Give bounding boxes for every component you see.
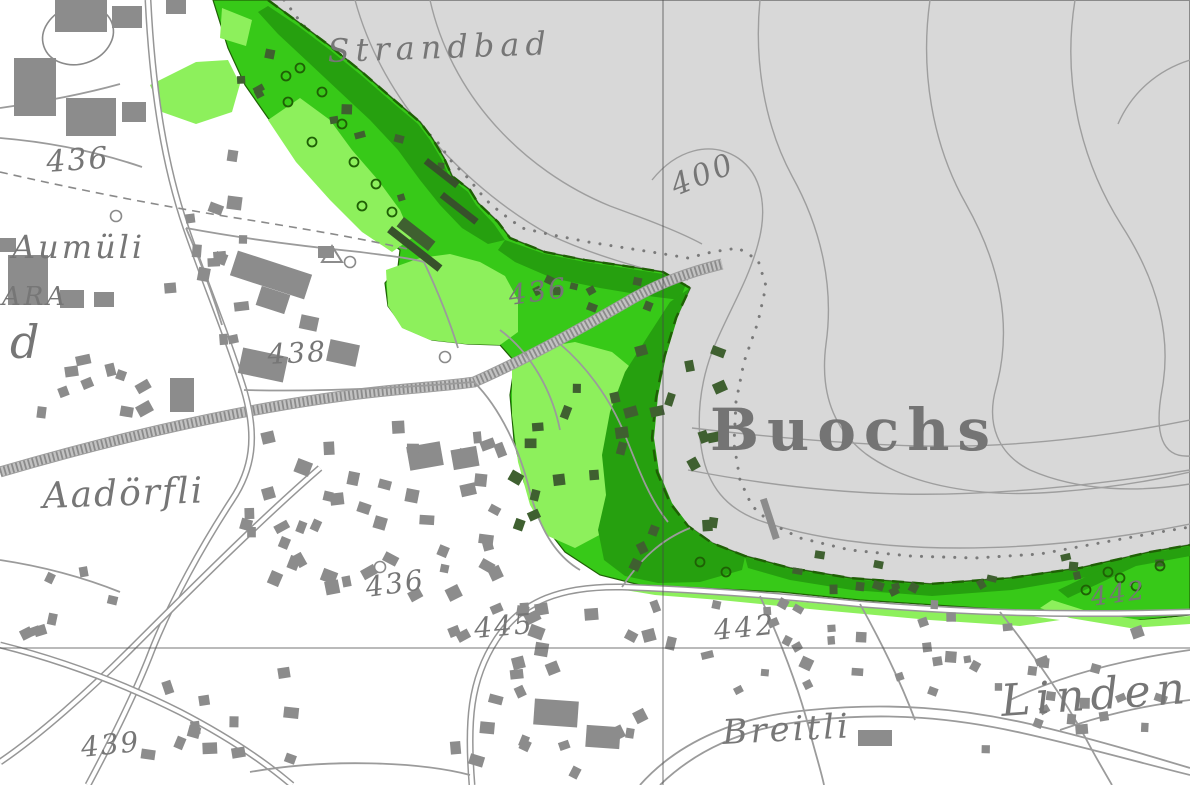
- building: [761, 669, 769, 677]
- building: [474, 473, 487, 487]
- building: [827, 636, 835, 645]
- building: [392, 420, 405, 433]
- building: [946, 612, 956, 621]
- map-label-aumuli: Aumüli: [9, 228, 145, 266]
- building: [440, 564, 450, 574]
- map-label-breitli: Breitli: [720, 706, 852, 753]
- building: [589, 470, 599, 481]
- building: [198, 695, 210, 706]
- building: [141, 749, 156, 761]
- building: [341, 104, 352, 114]
- building: [227, 150, 239, 163]
- building: [234, 301, 250, 312]
- building: [615, 426, 629, 439]
- building: [858, 730, 892, 746]
- building: [226, 196, 242, 211]
- building: [79, 566, 89, 577]
- building: [229, 716, 238, 727]
- building: [930, 600, 938, 609]
- map-label-aadorfli: Aadörfli: [39, 470, 205, 517]
- building: [170, 378, 194, 412]
- building: [94, 292, 114, 307]
- map-viewport[interactable]: Strandbad436AumüliARAd438400436BuochsAad…: [0, 0, 1190, 785]
- map-label-buochs: Buochs: [710, 396, 998, 464]
- building: [827, 624, 836, 632]
- map-label-elev-438: 438: [266, 335, 328, 371]
- building: [239, 235, 247, 244]
- circle-symbol: [440, 352, 451, 363]
- building: [119, 405, 133, 417]
- building: [856, 632, 867, 643]
- building: [1039, 657, 1050, 668]
- building: [404, 488, 419, 504]
- building: [190, 721, 201, 735]
- map-label-ara: ARA: [0, 282, 68, 312]
- map-label-elev-439: 439: [78, 725, 142, 764]
- building: [283, 706, 299, 718]
- building: [1069, 562, 1079, 572]
- building: [851, 668, 863, 676]
- building: [963, 655, 971, 663]
- building: [122, 102, 146, 122]
- building: [1141, 723, 1149, 733]
- map-label-elev-436-topleft: 436: [44, 141, 111, 180]
- building: [192, 244, 202, 257]
- building: [525, 438, 537, 448]
- building: [36, 406, 46, 418]
- building: [323, 441, 334, 455]
- building: [932, 656, 943, 666]
- building: [264, 48, 275, 59]
- building: [166, 0, 186, 14]
- building: [66, 98, 116, 136]
- building: [553, 474, 566, 487]
- building: [277, 667, 290, 679]
- map-canvas[interactable]: Strandbad436AumüliARAd438400436BuochsAad…: [0, 0, 1190, 785]
- building: [219, 334, 228, 345]
- building: [324, 579, 340, 595]
- building: [237, 76, 246, 84]
- building: [584, 608, 599, 621]
- building: [112, 6, 142, 28]
- building: [922, 642, 932, 652]
- building: [945, 651, 957, 663]
- circle-symbol: [345, 257, 356, 268]
- building: [473, 431, 482, 443]
- building: [231, 746, 246, 758]
- building: [164, 282, 177, 293]
- building: [814, 550, 825, 559]
- building: [479, 721, 495, 734]
- building: [185, 213, 195, 223]
- building: [197, 267, 211, 282]
- map-label-strandbad: Strandbad: [327, 24, 552, 70]
- building: [532, 422, 544, 431]
- building: [419, 515, 434, 525]
- building: [213, 251, 226, 261]
- building: [510, 669, 524, 680]
- building: [829, 585, 837, 595]
- building: [534, 642, 549, 657]
- building: [708, 517, 718, 529]
- building: [244, 508, 254, 519]
- building: [202, 742, 217, 754]
- building: [450, 741, 461, 755]
- building: [14, 58, 56, 116]
- building: [982, 745, 990, 753]
- building: [55, 0, 107, 32]
- building: [573, 384, 581, 393]
- building: [625, 728, 635, 739]
- building: [64, 365, 79, 377]
- map-label-elev-445: 445: [472, 607, 535, 645]
- map-label-letter-d: d: [10, 315, 39, 369]
- building: [407, 444, 419, 453]
- building: [1075, 724, 1088, 735]
- building: [1002, 623, 1012, 631]
- map-label-elev-442-mid: 442: [711, 608, 778, 647]
- circle-symbol: [111, 211, 122, 222]
- building: [855, 582, 864, 592]
